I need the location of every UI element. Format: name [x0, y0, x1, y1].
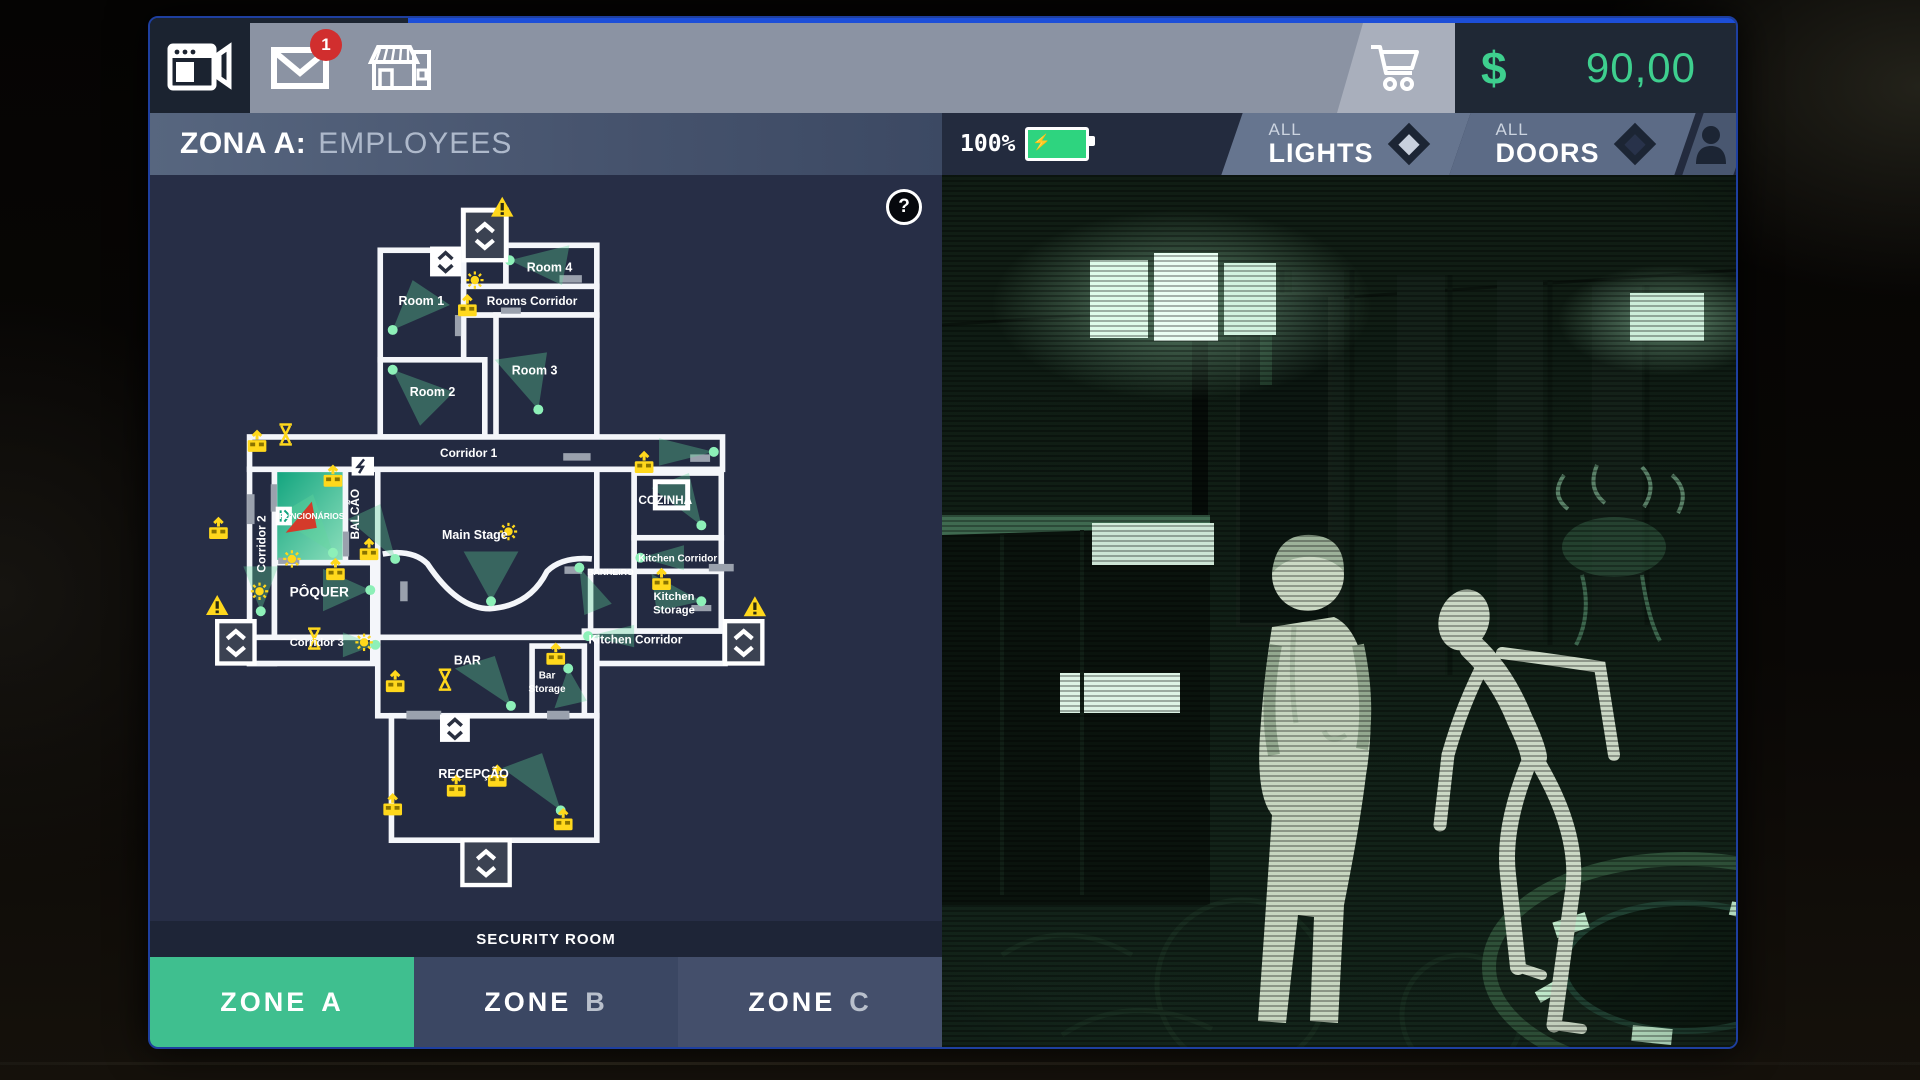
- tab-zone-c[interactable]: ZONE C: [678, 957, 942, 1047]
- svg-text:RECEPÇÃO: RECEPÇÃO: [438, 766, 509, 781]
- svg-text:Storage: Storage: [653, 605, 695, 617]
- svg-text:Room 2: Room 2: [410, 385, 456, 399]
- svg-text:Kitchen Corridor: Kitchen Corridor: [638, 553, 717, 564]
- zone-tabs: ZONE A ZONE B ZONE C: [150, 957, 942, 1047]
- room-stage-wing: [597, 469, 634, 571]
- tab-shop[interactable]: [350, 23, 450, 113]
- zone-a-letter: A: [321, 987, 344, 1018]
- currency-symbol: $: [1481, 41, 1507, 95]
- all-lights-line1: ALL: [1269, 121, 1374, 138]
- all-doors-label: ALL DOORS: [1495, 121, 1599, 167]
- svg-text:Kitchen: Kitchen: [653, 591, 694, 603]
- all-lights-label: ALL LIGHTS: [1269, 121, 1374, 167]
- zone-header: ZONA A: EMPLOYEES: [150, 113, 942, 175]
- svg-text:Storage: Storage: [529, 684, 566, 695]
- wallet: $ 90,00: [1455, 23, 1736, 113]
- zone-c-word: ZONE: [748, 987, 835, 1018]
- room-background: 1: [0, 0, 1920, 1080]
- all-lights-toggle[interactable]: ALL LIGHTS: [1232, 113, 1460, 175]
- svg-text:Room 1: Room 1: [399, 294, 445, 308]
- svg-text:BANHEIRO: BANHEIRO: [587, 567, 634, 577]
- svg-text:Room 3: Room 3: [512, 364, 558, 378]
- tab-cameras[interactable]: [150, 18, 250, 113]
- cart-icon: [1368, 41, 1424, 95]
- lights-diamond-state: [1398, 133, 1419, 154]
- guests-button[interactable]: [1685, 113, 1736, 175]
- svg-text:Room 4: Room 4: [527, 260, 573, 274]
- sub-header: ZONA A: EMPLOYEES 100% ⚡ ALL LIGHTS ALL: [150, 113, 1736, 175]
- tab-mail[interactable]: 1: [250, 23, 350, 113]
- battery-icon: ⚡: [1025, 127, 1089, 161]
- zone-c-letter: C: [849, 987, 872, 1018]
- svg-text:PÔQUER: PÔQUER: [290, 584, 349, 599]
- camera-feed[interactable]: [942, 175, 1736, 1047]
- doors-diamond-state: [1624, 133, 1645, 154]
- all-doors-line2: DOORS: [1495, 140, 1599, 167]
- zone-b-word: ZONE: [484, 987, 571, 1018]
- zone-a-word: ZONE: [220, 987, 307, 1018]
- zone-name: EMPLOYEES: [318, 127, 512, 161]
- all-doors-toggle[interactable]: ALL DOORS: [1460, 113, 1685, 175]
- battery-percent: 100%: [960, 131, 1015, 157]
- top-bar: 1: [150, 18, 1736, 113]
- breaker-icon[interactable]: [352, 457, 374, 476]
- all-doors-line1: ALL: [1495, 121, 1599, 138]
- content: ?: [150, 175, 1736, 1047]
- zone-b-letter: B: [585, 987, 608, 1018]
- svg-text:Corridor 2: Corridor 2: [255, 515, 269, 573]
- security-monitor-screen: 1: [148, 16, 1738, 1049]
- storefront-icon: [367, 44, 433, 92]
- svg-text:FUNCIONÁRIOS: FUNCIONÁRIOS: [279, 511, 345, 521]
- svg-text:BAR: BAR: [454, 654, 481, 668]
- tab-zone-a[interactable]: ZONE A: [150, 957, 414, 1047]
- svg-text:Corridor 3: Corridor 3: [290, 637, 344, 649]
- floorplan-panel: ?: [150, 175, 942, 1047]
- tab-zone-b[interactable]: ZONE B: [414, 957, 678, 1047]
- svg-text:BALCÃO: BALCÃO: [348, 489, 362, 540]
- person-icon: [1693, 124, 1729, 164]
- desk-edge: [0, 1062, 1920, 1065]
- svg-text:Bar: Bar: [539, 670, 556, 681]
- lightning-icon: ⚡: [1032, 133, 1051, 151]
- zone-prefix: ZONA A:: [180, 127, 306, 161]
- mail-badge: 1: [310, 29, 342, 61]
- svg-text:Rooms Corridor: Rooms Corridor: [487, 294, 578, 308]
- floorplan-map[interactable]: Room 1 Room 4 Rooms Corridor Room 2 Room…: [206, 183, 786, 905]
- ceiling-light: [992, 210, 1372, 400]
- night-vision-scene: [942, 175, 1736, 1047]
- svg-text:Kitchen Corridor: Kitchen Corridor: [588, 633, 682, 647]
- help-button[interactable]: ?: [886, 189, 922, 225]
- wallet-balance: 90,00: [1586, 44, 1696, 92]
- counter: [942, 515, 1214, 905]
- security-room-label: SECURITY ROOM: [150, 921, 942, 957]
- svg-text:COZINHA: COZINHA: [638, 493, 692, 507]
- svg-text:Corridor 1: Corridor 1: [440, 446, 498, 460]
- all-lights-line2: LIGHTS: [1269, 140, 1374, 167]
- svg-text:Main Stage: Main Stage: [442, 528, 508, 542]
- battery-status: 100% ⚡: [942, 113, 1232, 175]
- camera-monitor-icon: [167, 40, 233, 92]
